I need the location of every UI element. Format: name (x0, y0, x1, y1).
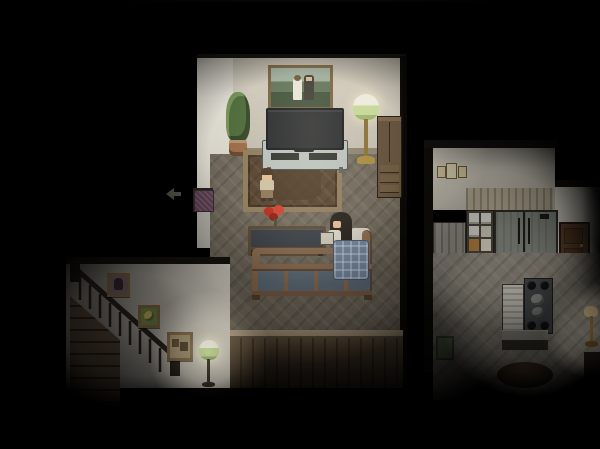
tv-stand (294, 148, 314, 152)
kitchen-wall-frames (437, 162, 469, 180)
exit-arrow-tail (174, 192, 181, 196)
tv-cabinet-slot-right (309, 153, 337, 160)
stair-picture-1[interactable] (107, 273, 130, 297)
fridge-handle-right (528, 218, 530, 244)
dresser-drawer-3 (380, 185, 399, 193)
dresser-drawer-1 (380, 165, 399, 173)
fridge-label (540, 214, 549, 219)
kitchen-lamp-pole (590, 316, 593, 342)
picture-2-flowers (144, 311, 154, 321)
kitchen-table[interactable] (497, 362, 553, 388)
bed-bottom-rail (252, 291, 372, 296)
boy-pants (261, 190, 273, 198)
dresser-drawer-2 (380, 175, 399, 183)
bed-blanket (333, 240, 369, 280)
kitchen-dark-cabinet (584, 352, 600, 378)
kitchen-west-edge (424, 140, 433, 372)
stove-pot-2 (532, 307, 544, 317)
counter-front (502, 340, 548, 350)
game-viewport: Wooden staircase descending with dark ra… (0, 0, 600, 449)
lamp-shade (353, 94, 379, 120)
boy-shoe-left (261, 198, 266, 201)
tv[interactable] (266, 108, 344, 150)
stair-newel-top (70, 260, 80, 282)
tv-cabinet-leg-right (339, 167, 343, 173)
kitchen-counter (502, 330, 548, 350)
dresser-door-seam (389, 122, 390, 162)
kitchen-wall-cap (424, 140, 557, 148)
girl-book (320, 232, 334, 245)
bedroom-south-paneling-trim (228, 330, 403, 338)
kitchen-right-wall-cap (555, 180, 600, 187)
door-panel-top (564, 228, 583, 244)
bride-hair (294, 75, 301, 81)
bed-foot-left (252, 295, 260, 300)
kitchen-lamp-base (585, 341, 598, 347)
stair-picture-3[interactable] (167, 332, 193, 361)
bride-figure (293, 78, 302, 100)
kitchen-stove[interactable] (524, 278, 553, 334)
bedroom-wall-picture[interactable] (268, 65, 333, 110)
stairwell-floor-lamp[interactable] (198, 340, 220, 388)
character-boy[interactable] (258, 168, 276, 202)
picture-3-figures-2 (180, 342, 188, 351)
fridge-handle-left (518, 218, 520, 244)
kitchen-fridge[interactable] (494, 210, 558, 258)
picture-1-figure (114, 278, 123, 290)
wall-frame-1 (437, 166, 446, 178)
counter-top (502, 330, 548, 340)
dresser-top (378, 117, 401, 121)
picture-3-figures (172, 339, 179, 347)
exit-arrow-icon[interactable] (166, 188, 182, 201)
dish-stack-2 (481, 213, 491, 224)
girl-face (333, 221, 341, 228)
screen-top-edge (0, 0, 600, 2)
lamp-pole (364, 119, 368, 158)
dish-stack-4 (481, 226, 491, 237)
stair-picture-2[interactable] (138, 305, 160, 328)
stair-steps[interactable] (70, 296, 120, 428)
door-knob (580, 244, 583, 247)
stove-burner-4 (540, 321, 549, 330)
boy-shoe-right (268, 198, 273, 201)
kitchen-upper-cabinets[interactable] (466, 188, 553, 212)
stove-burner-2 (540, 281, 549, 290)
bedroom-south-paneling (228, 338, 403, 388)
dish-stack-orange (469, 239, 479, 251)
stove-burner-1 (527, 281, 536, 290)
dish-stack-5 (481, 239, 491, 251)
lamp-base (357, 156, 375, 164)
exit-arrow-head (166, 188, 174, 200)
doormat (194, 190, 214, 212)
bedroom-dresser[interactable] (377, 116, 402, 198)
tv-cabinet-slot-left (271, 153, 299, 160)
kitchen-cabinet[interactable] (502, 284, 524, 332)
groom-face (306, 77, 312, 81)
wall-frame-3 (458, 166, 467, 178)
kitchen-dish-shelf[interactable] (466, 210, 494, 255)
stair-lamp-base (202, 382, 215, 387)
wall-frame-2 (446, 163, 457, 179)
stove-pot-1 (531, 294, 544, 305)
bed-foot-right (364, 295, 372, 300)
fridge-divider (523, 212, 525, 252)
dish-stack-1 (469, 213, 479, 224)
plant-foliage (226, 92, 250, 142)
dish-stack-3 (469, 226, 479, 237)
stove-burner-3 (527, 321, 536, 330)
kitchen-floor-lamp[interactable] (583, 306, 600, 350)
stair-lamp-shade (199, 340, 219, 360)
kitchen-green-frame (436, 336, 454, 360)
stair-lamp-pole (207, 359, 210, 383)
